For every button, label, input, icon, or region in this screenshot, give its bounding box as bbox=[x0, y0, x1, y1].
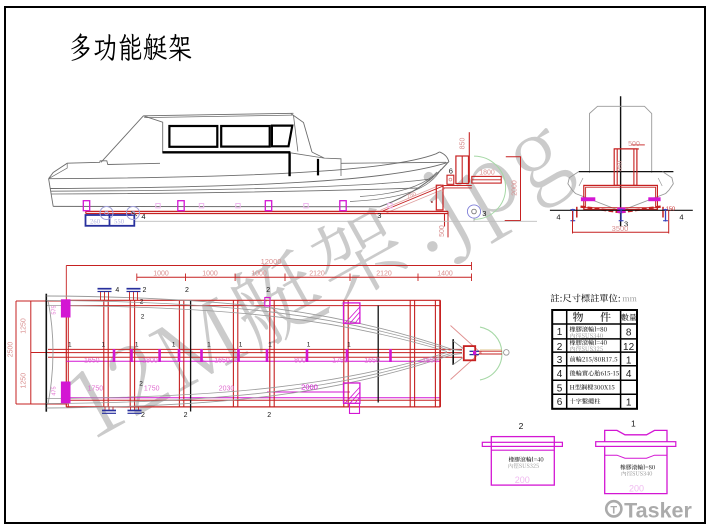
svg-text:2: 2 bbox=[519, 421, 524, 431]
svg-text:575: 575 bbox=[51, 305, 57, 314]
svg-text:1: 1 bbox=[347, 342, 351, 349]
svg-text:2: 2 bbox=[143, 287, 147, 294]
svg-text:1400: 1400 bbox=[437, 271, 453, 278]
svg-text:2: 2 bbox=[140, 299, 144, 306]
svg-text:1000: 1000 bbox=[251, 271, 267, 278]
svg-text:1: 1 bbox=[207, 342, 211, 349]
svg-text:200: 200 bbox=[629, 484, 644, 494]
svg-text:Tasker: Tasker bbox=[624, 499, 692, 523]
svg-text:1000: 1000 bbox=[202, 271, 218, 278]
svg-text:3: 3 bbox=[482, 209, 486, 218]
svg-text:1: 1 bbox=[101, 342, 105, 349]
svg-text:1000: 1000 bbox=[153, 271, 169, 278]
svg-text:1750: 1750 bbox=[144, 386, 160, 393]
svg-text:2000: 2000 bbox=[301, 383, 318, 392]
svg-text:1: 1 bbox=[239, 342, 243, 349]
svg-text:2: 2 bbox=[557, 342, 563, 353]
svg-text:4: 4 bbox=[626, 369, 632, 380]
svg-text:2000: 2000 bbox=[512, 180, 519, 196]
svg-text:3: 3 bbox=[377, 211, 381, 220]
svg-text:1: 1 bbox=[307, 342, 311, 349]
svg-text:1750: 1750 bbox=[88, 386, 104, 393]
svg-text:850: 850 bbox=[460, 138, 467, 150]
svg-text:2: 2 bbox=[267, 412, 271, 419]
svg-text:1750: 1750 bbox=[332, 358, 348, 365]
svg-text:475: 475 bbox=[51, 386, 57, 395]
svg-text:2: 2 bbox=[266, 287, 270, 294]
svg-text:2120: 2120 bbox=[309, 271, 325, 278]
svg-text:4: 4 bbox=[556, 213, 560, 222]
svg-text:1: 1 bbox=[626, 398, 632, 409]
svg-text:2: 2 bbox=[139, 381, 143, 388]
svg-text:500: 500 bbox=[628, 141, 640, 148]
svg-text:1: 1 bbox=[268, 342, 272, 349]
svg-text:1800: 1800 bbox=[142, 358, 158, 365]
svg-text:1800: 1800 bbox=[479, 170, 495, 177]
svg-text:1650: 1650 bbox=[422, 358, 438, 365]
svg-text:12000: 12000 bbox=[261, 257, 282, 266]
svg-text:1: 1 bbox=[68, 342, 72, 349]
svg-text:800: 800 bbox=[294, 358, 306, 365]
svg-text:2120: 2120 bbox=[376, 271, 392, 278]
svg-text:1: 1 bbox=[626, 355, 632, 366]
svg-text:4: 4 bbox=[141, 212, 145, 221]
svg-text:3500: 3500 bbox=[612, 224, 629, 233]
svg-text:3: 3 bbox=[557, 355, 563, 366]
svg-text:8: 8 bbox=[626, 327, 632, 338]
svg-text:2500: 2500 bbox=[8, 342, 15, 358]
svg-text:1650: 1650 bbox=[214, 358, 230, 365]
svg-text:4: 4 bbox=[115, 287, 119, 294]
svg-text:4: 4 bbox=[679, 213, 683, 222]
svg-text:6: 6 bbox=[557, 397, 563, 408]
svg-text:4: 4 bbox=[557, 369, 563, 380]
svg-text:1250: 1250 bbox=[20, 318, 27, 334]
svg-text:850: 850 bbox=[616, 160, 623, 171]
svg-text:2: 2 bbox=[141, 412, 145, 419]
svg-text:1: 1 bbox=[135, 342, 139, 349]
svg-text:5: 5 bbox=[557, 383, 563, 394]
svg-text:2: 2 bbox=[185, 287, 189, 294]
svg-text:150: 150 bbox=[666, 207, 675, 213]
svg-text:1: 1 bbox=[172, 342, 176, 349]
svg-text:500: 500 bbox=[439, 225, 446, 237]
svg-text:6: 6 bbox=[449, 167, 453, 176]
svg-text:2030: 2030 bbox=[219, 386, 235, 393]
svg-text:200: 200 bbox=[515, 475, 530, 485]
svg-text:12: 12 bbox=[623, 342, 635, 353]
svg-text:T: T bbox=[610, 505, 617, 517]
svg-text:2: 2 bbox=[184, 412, 188, 419]
svg-text:1250: 1250 bbox=[20, 373, 27, 389]
svg-text:1650: 1650 bbox=[364, 358, 380, 365]
svg-text:1650: 1650 bbox=[84, 358, 100, 365]
svg-text:1: 1 bbox=[557, 327, 563, 338]
svg-text:1: 1 bbox=[631, 419, 636, 429]
svg-text:2: 2 bbox=[141, 314, 145, 321]
